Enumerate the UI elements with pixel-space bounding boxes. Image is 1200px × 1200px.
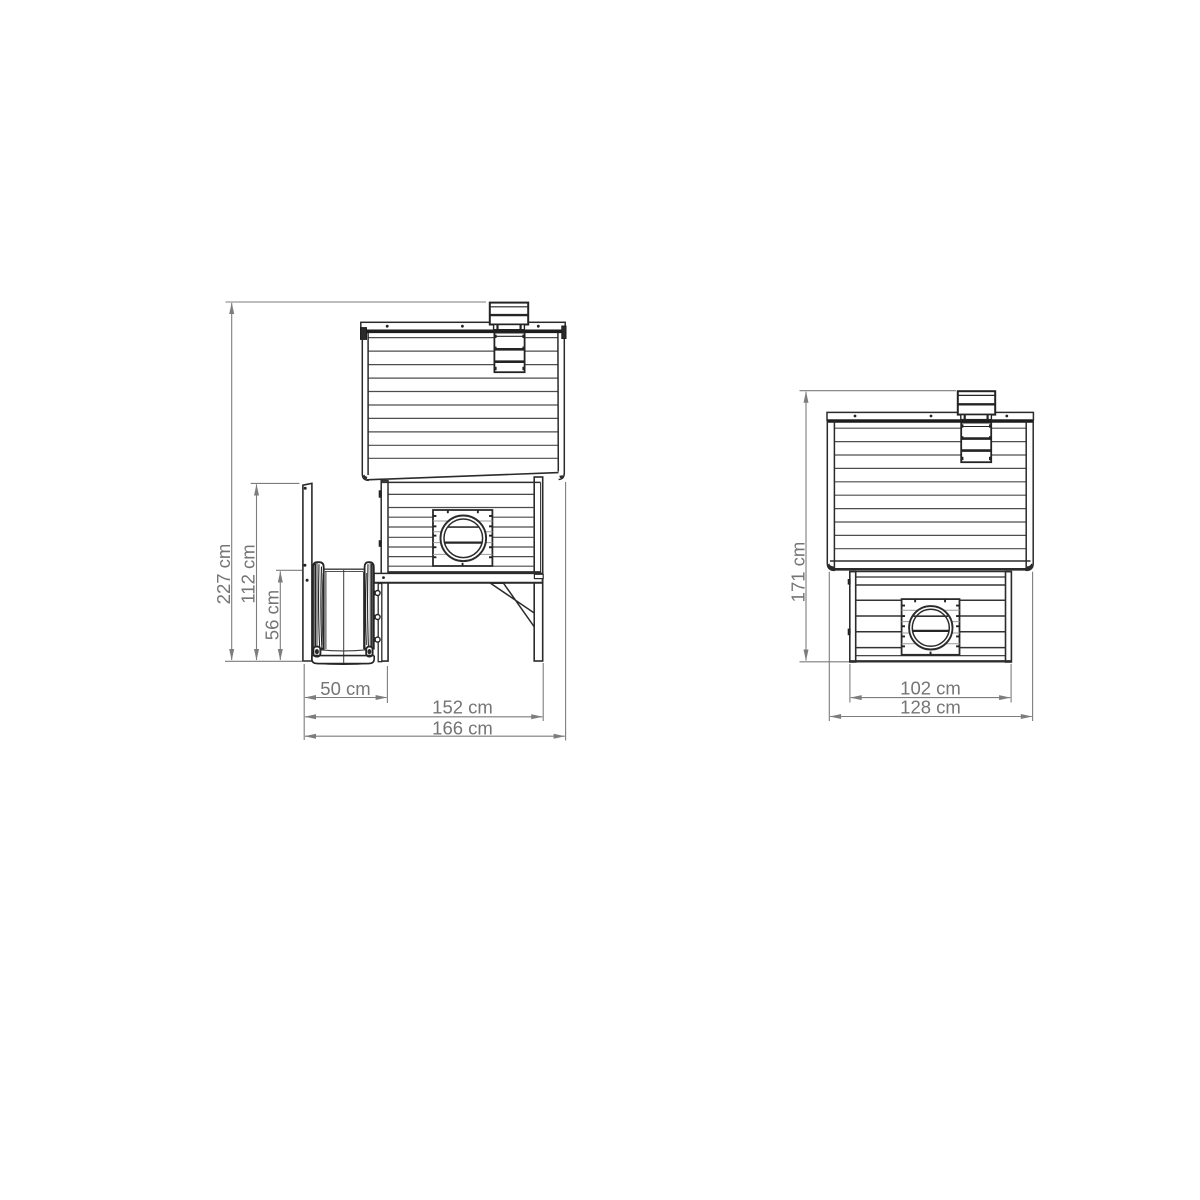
svg-text:166 cm: 166 cm <box>432 718 493 739</box>
svg-text:171 cm: 171 cm <box>788 542 809 603</box>
svg-text:227 cm: 227 cm <box>213 544 234 605</box>
svg-text:56 cm: 56 cm <box>262 590 283 640</box>
svg-text:112 cm: 112 cm <box>238 544 259 603</box>
svg-text:128 cm: 128 cm <box>900 696 961 717</box>
svg-text:50 cm: 50 cm <box>320 678 370 699</box>
svg-text:152 cm: 152 cm <box>432 697 493 718</box>
